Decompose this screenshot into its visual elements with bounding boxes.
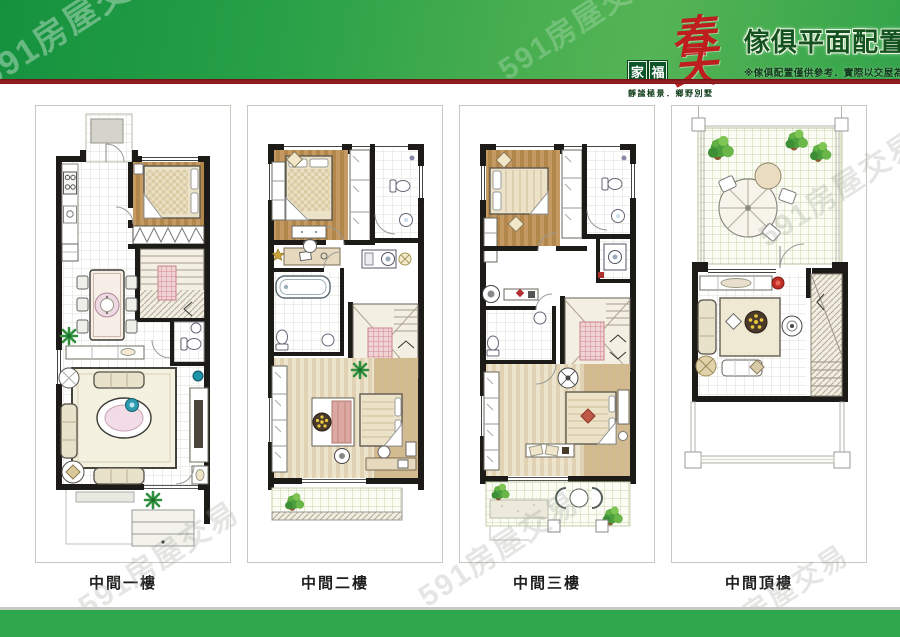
header-banner: 591房屋交易 591房屋交易 家福 春天 靜謐極景．鄉野別墅 傢俱平面配置圖 … <box>0 0 900 79</box>
floor-label-4: 中間頂樓 <box>661 572 857 593</box>
brand-logo: 家福 春天 靜謐極景．鄉野別墅 <box>628 22 746 99</box>
bathroom-lower <box>480 294 556 364</box>
front-yard <box>66 490 210 546</box>
floorplan-roof-drawing <box>672 106 866 562</box>
stairs <box>806 268 842 396</box>
roof-terrace <box>692 106 848 264</box>
panel-floor-3 <box>459 105 655 563</box>
page-title: 傢俱平面配置圖 <box>744 22 900 59</box>
lower-roof-outline <box>685 402 850 468</box>
master-bedroom <box>272 358 418 478</box>
hall-audio <box>483 286 539 303</box>
floorplan-2-drawing <box>248 106 442 562</box>
bathtub-room <box>268 252 344 356</box>
title-block: 傢俱平面配置圖 ※傢俱配置僅供參考．實際以交屋為主 <box>744 22 900 79</box>
master-bedroom <box>484 364 630 476</box>
footer-bar <box>0 610 900 637</box>
balcony <box>272 488 402 520</box>
bathroom-top <box>370 150 424 243</box>
floor-label-2: 中間二樓 <box>237 572 433 593</box>
stairs <box>135 249 204 318</box>
panel-floor-1 <box>35 105 231 563</box>
floorplan-poster: 591房屋交易 591房屋交易 家福 春天 靜謐極景．鄉野別墅 傢俱平面配置圖 … <box>0 0 900 637</box>
terrace <box>486 482 630 540</box>
roof-living-room <box>696 274 806 396</box>
page-subtitle: ※傢俱配置僅供參考．實際以交屋為主 <box>744 65 900 79</box>
panel-floor-roof <box>671 105 867 563</box>
entry-porch <box>86 114 132 162</box>
floorplan-3-drawing <box>460 106 654 562</box>
header-divider <box>0 79 900 84</box>
bedroom-2 <box>268 144 375 245</box>
floorplan-1-drawing <box>36 106 230 562</box>
panel-floor-2 <box>247 105 443 563</box>
kitchen <box>62 164 78 261</box>
floor-label-3: 中間三樓 <box>449 572 645 593</box>
bedroom-3 <box>480 144 587 262</box>
floor-label-1: 中間一樓 <box>25 572 221 593</box>
logo-script: 春天 <box>670 20 748 85</box>
bathroom-top <box>582 150 636 239</box>
laundry <box>596 239 636 283</box>
